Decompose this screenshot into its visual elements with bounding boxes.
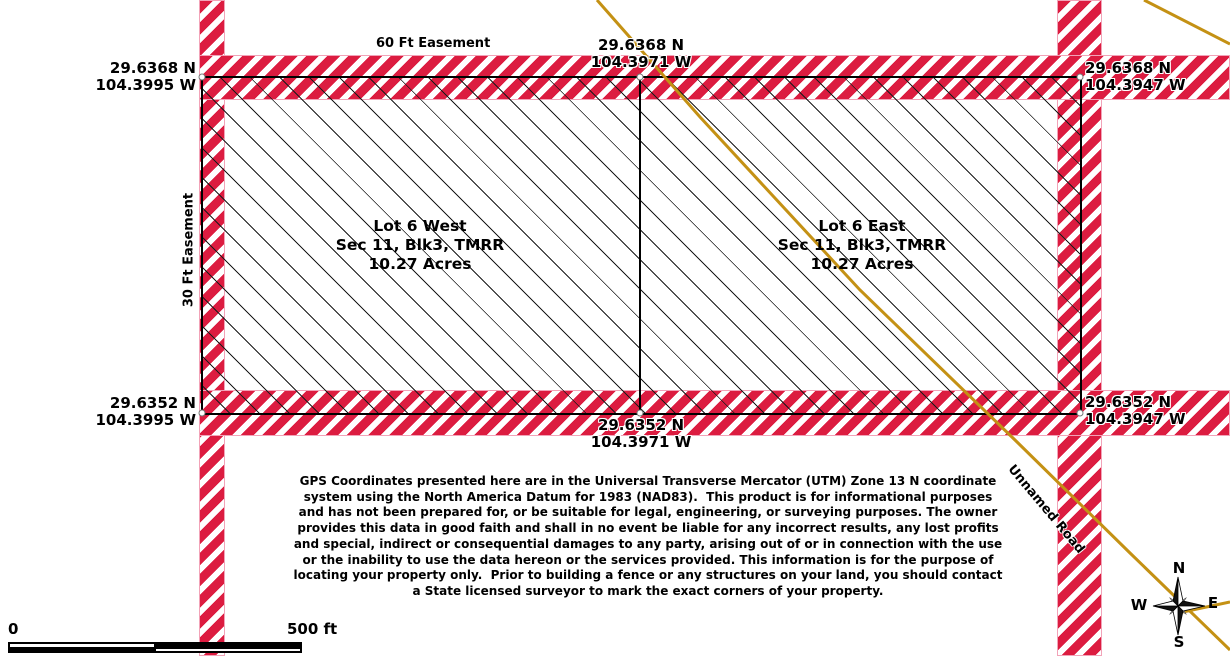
compass-main-star bbox=[1153, 577, 1205, 635]
scale-bar-segment bbox=[9, 648, 155, 653]
scale-bar-segment bbox=[155, 648, 301, 653]
compass-west-label: W bbox=[1131, 596, 1148, 614]
coords-s: 29.6352 N104.3971 W bbox=[591, 417, 692, 451]
lot-west-name: Lot 6 West bbox=[336, 217, 505, 236]
lot-east-label: Lot 6 EastSec 11, Blk3, TMRR10.27 Acres bbox=[778, 217, 947, 274]
easement-label-top: 60 Ft Easement bbox=[376, 36, 490, 51]
coords-sw-lon: 104.3995 W bbox=[95, 412, 196, 429]
corner-marker-se bbox=[1077, 410, 1084, 417]
compass-south-label: S bbox=[1174, 633, 1185, 651]
coords-ne: 29.6368 N104.3947 W bbox=[1085, 60, 1186, 94]
scale-zero-label: 0 bbox=[8, 620, 18, 638]
coords-s-lon: 104.3971 W bbox=[591, 434, 692, 451]
lot-west-label: Lot 6 WestSec 11, Blk3, TMRR10.27 Acres bbox=[336, 217, 505, 274]
compass-north-label: N bbox=[1173, 559, 1186, 577]
lot-east-block: Sec 11, Blk3, TMRR bbox=[778, 236, 947, 255]
coords-sw-lat: 29.6352 N bbox=[95, 395, 196, 412]
coords-ne-lon: 104.3947 W bbox=[1085, 77, 1186, 94]
lot-east-acres: 10.27 Acres bbox=[778, 255, 947, 274]
lot-east-name: Lot 6 East bbox=[778, 217, 947, 236]
lot-west-acres: 10.27 Acres bbox=[336, 255, 505, 274]
coords-s-lat: 29.6352 N bbox=[591, 417, 692, 434]
easement-label-left: 30 Ft Easement bbox=[182, 193, 197, 307]
road-line-top-right bbox=[1144, 0, 1230, 44]
coords-se-lat: 29.6352 N bbox=[1085, 394, 1186, 411]
coords-n-lat: 29.6368 N bbox=[591, 37, 692, 54]
scale-bar bbox=[8, 642, 302, 653]
corner-marker-sw bbox=[199, 410, 206, 417]
corner-marker-ne bbox=[1077, 74, 1084, 81]
coords-ne-lat: 29.6368 N bbox=[1085, 60, 1186, 77]
compass-east-label: E bbox=[1208, 594, 1218, 612]
coords-nw: 29.6368 N104.3995 W bbox=[95, 60, 196, 94]
coords-n-lon: 104.3971 W bbox=[591, 54, 692, 71]
corner-marker-nw bbox=[199, 74, 206, 81]
corner-marker-n bbox=[637, 74, 644, 81]
gps-disclaimer-text: GPS Coordinates presented here are in th… bbox=[250, 474, 1046, 600]
plat-map: 29.6368 N104.3995 W 29.6368 N104.3971 W … bbox=[0, 0, 1230, 656]
coords-nw-lon: 104.3995 W bbox=[95, 77, 196, 94]
coords-se: 29.6352 N104.3947 W bbox=[1085, 394, 1186, 428]
coords-sw: 29.6352 N104.3995 W bbox=[95, 395, 196, 429]
coords-se-lon: 104.3947 W bbox=[1085, 411, 1186, 428]
coords-nw-lat: 29.6368 N bbox=[95, 60, 196, 77]
scale-end-label: 500 ft bbox=[287, 620, 337, 638]
lot-west-block: Sec 11, Blk3, TMRR bbox=[336, 236, 505, 255]
coords-n: 29.6368 N104.3971 W bbox=[591, 37, 692, 71]
